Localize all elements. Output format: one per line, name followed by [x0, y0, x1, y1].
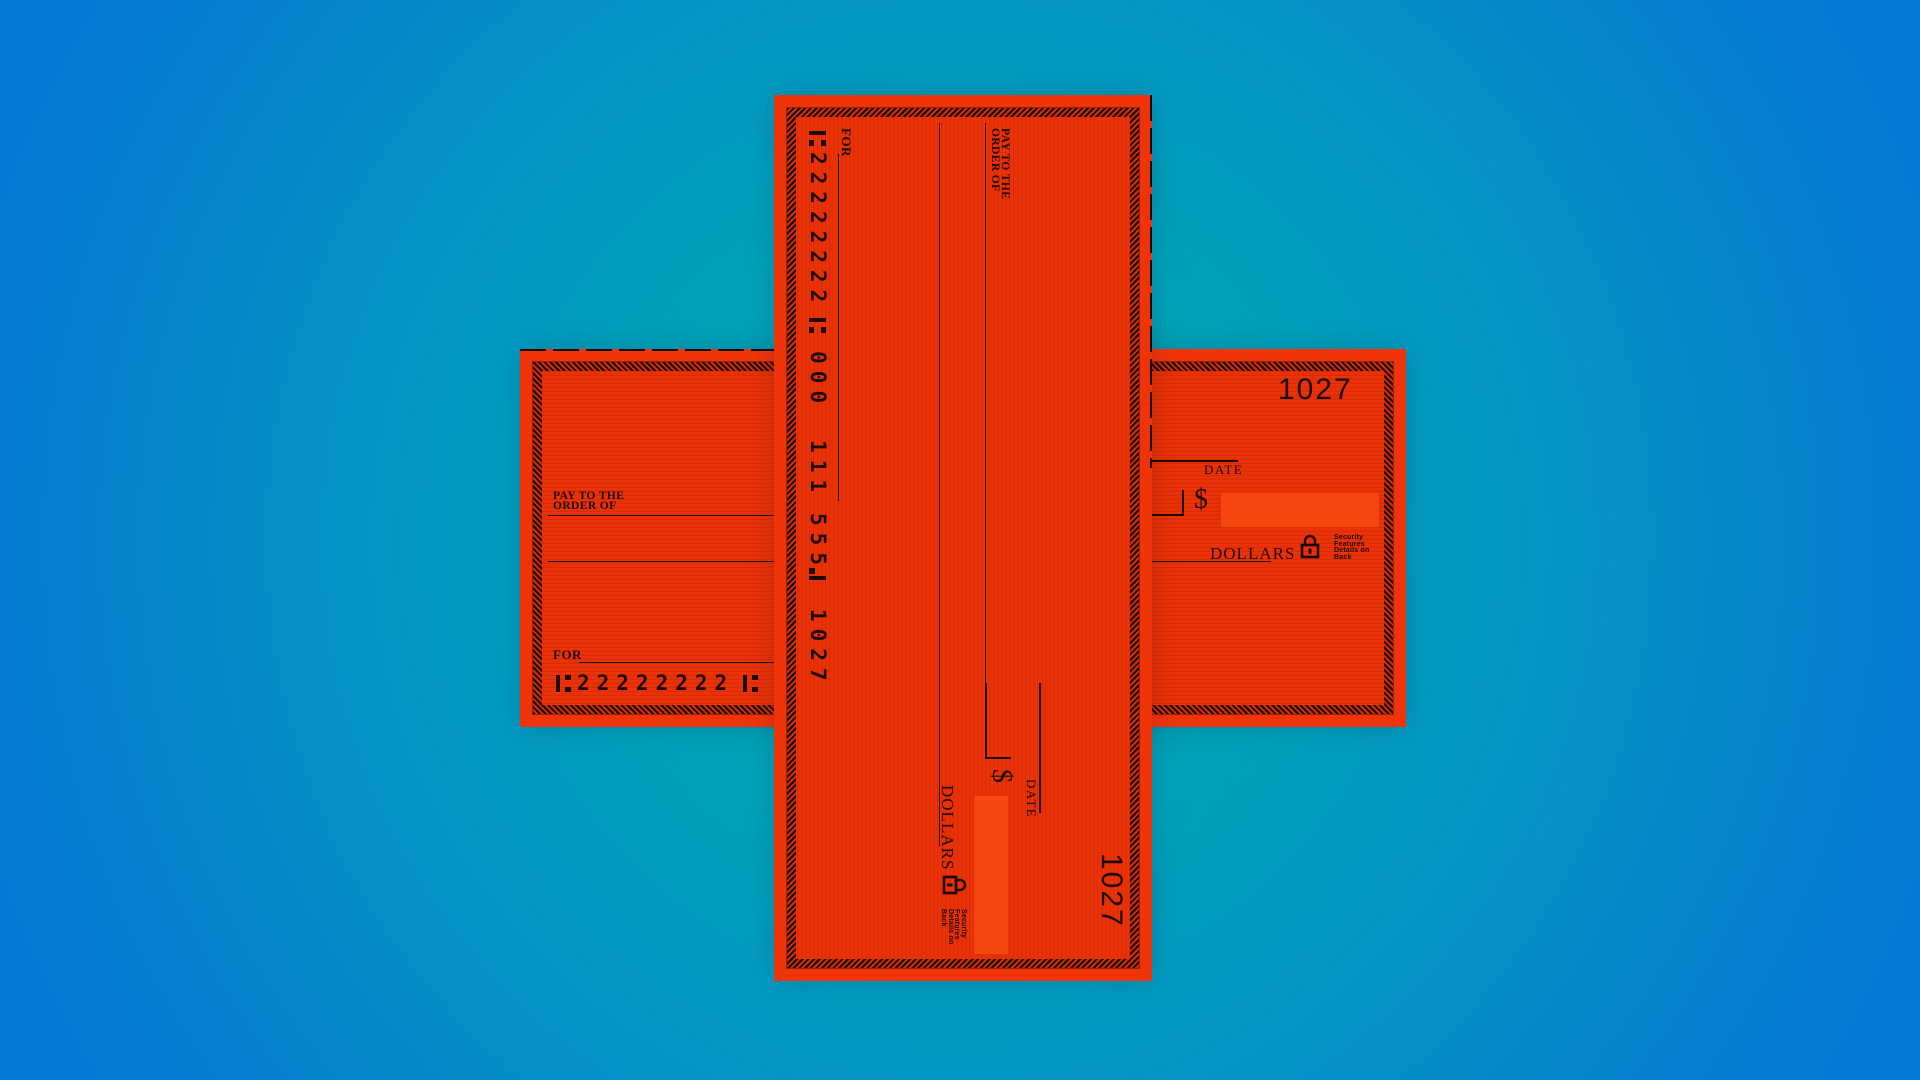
dollar-sign: $ — [1194, 484, 1208, 516]
dollars-label: DOLLARS — [937, 785, 957, 870]
payee-line — [985, 123, 986, 755]
security-note-line: Details on — [946, 909, 953, 944]
memo-line — [838, 154, 839, 501]
security-note-line: Back — [1334, 555, 1369, 562]
date-line — [1039, 683, 1041, 813]
dollar-sign: $ — [985, 769, 1017, 783]
for-label: FOR — [838, 128, 854, 157]
pay-to-line2: ORDER OF — [990, 128, 1000, 199]
security-note-line: Security — [959, 909, 966, 944]
micr-transit-icon — [810, 315, 827, 335]
amount-box — [1221, 493, 1379, 527]
check-ornamental-border — [787, 108, 1139, 968]
micr-routing-number: 22222222 — [806, 152, 830, 309]
pay-to-line2: ORDER OF — [553, 502, 624, 512]
amount-divider-corner — [986, 757, 1011, 759]
micr-check-number: 1027 — [806, 609, 830, 688]
illustration-canvas: 1027 DATE $ PAY TO THE ORDER OF DOLLARS … — [0, 0, 1920, 1080]
micr-routing-number: 22222222 — [577, 671, 734, 695]
signature-line — [1150, 95, 1152, 468]
security-note-line: Back — [940, 909, 947, 944]
for-label: FOR — [553, 647, 582, 663]
micr-transit-icon — [553, 675, 573, 692]
pay-to-the-order-of-label: PAY TO THE ORDER OF — [553, 492, 624, 511]
micr-account-group: 555 — [806, 513, 830, 572]
lock-icon — [942, 874, 967, 896]
amount-box — [974, 796, 1008, 954]
date-label: DATE — [1023, 779, 1039, 818]
lock-icon — [1299, 534, 1321, 559]
micr-account-group: 000 — [806, 351, 830, 410]
micr-onus-icon — [810, 568, 827, 583]
security-note: Security Features Details on Back — [940, 909, 966, 944]
micr-account-group: 111 — [806, 440, 830, 499]
amount-words-line — [939, 123, 940, 846]
date-label: DATE — [1204, 462, 1243, 478]
check-vertical: 1027 DATE $ PAY TO THE ORDER OF DOLLARS … — [774, 95, 1152, 981]
pay-to-the-order-of-label: PAY TO THE ORDER OF — [990, 128, 1009, 199]
check-number: 1027 — [1094, 853, 1128, 928]
dollars-label: DOLLARS — [1210, 544, 1295, 564]
micr-transit-icon — [740, 675, 760, 692]
micr-line: 22222222 000 111 555 1027 — [808, 128, 828, 688]
micr-transit-icon — [810, 128, 827, 148]
amount-divider-corner — [1182, 490, 1184, 515]
security-note: Security Features Details on Back — [1334, 535, 1369, 561]
check-number: 1027 — [1278, 373, 1353, 407]
